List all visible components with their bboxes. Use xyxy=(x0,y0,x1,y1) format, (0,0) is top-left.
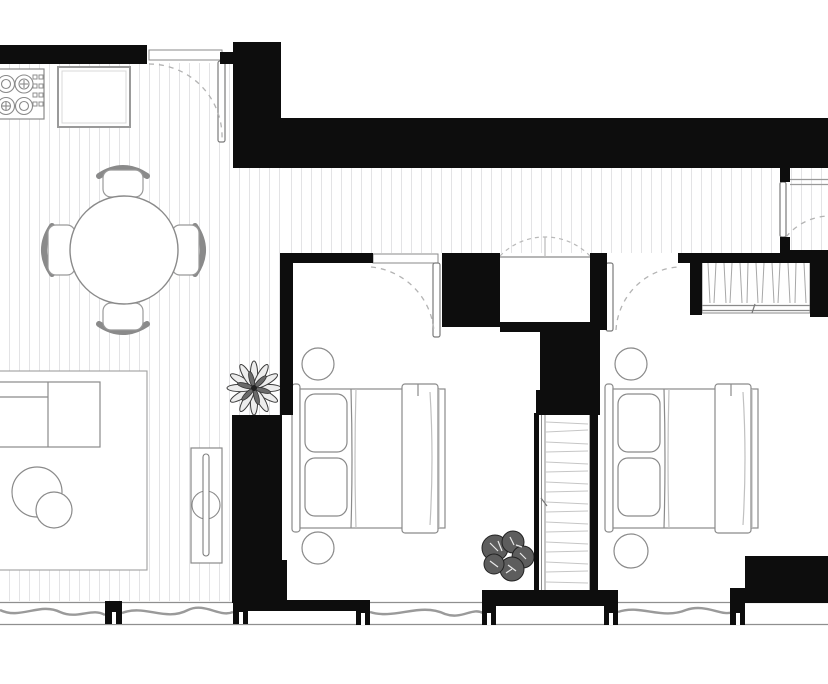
bedroom-2-door xyxy=(606,263,678,331)
plan-drawing xyxy=(0,0,828,684)
kitchen-counter xyxy=(0,67,130,127)
wall-bedroom1-top xyxy=(283,253,373,263)
side-room-door xyxy=(780,182,828,237)
side-room-shelf xyxy=(790,180,828,185)
pier-slit xyxy=(736,613,740,625)
bedroom-1-door-swing-arc xyxy=(371,267,434,332)
pier-slit xyxy=(112,612,116,624)
window-living-left xyxy=(0,609,105,615)
nightstand xyxy=(614,534,648,568)
bedroom-2-door-leaf xyxy=(606,263,613,331)
window-pier xyxy=(356,600,370,625)
bedroom-1-door xyxy=(371,254,440,337)
floor-plan xyxy=(0,0,828,684)
wall-wardrobe-right-corner xyxy=(810,262,828,317)
potted-plant-leafy xyxy=(482,531,534,581)
wall-shaft-left-edge xyxy=(534,413,539,593)
wall-sideroom-stub-top xyxy=(780,167,790,182)
tv-sideboard xyxy=(191,448,222,563)
wall-sideroom-stub-bottom xyxy=(780,237,790,253)
window-pier xyxy=(105,601,122,624)
wall-right-of-closet xyxy=(590,253,607,330)
window-pier xyxy=(233,601,248,624)
wall-bottom-right-block xyxy=(745,556,828,603)
wall-entrance-jamb xyxy=(220,52,233,64)
pillow xyxy=(305,394,347,452)
bedroom-1-door-leaf xyxy=(433,263,440,337)
window-pier xyxy=(730,588,745,625)
round-dining-table xyxy=(70,196,178,304)
wall-wardrobe-left xyxy=(690,262,702,315)
window-bedroom-2 xyxy=(618,608,733,613)
dining-set xyxy=(44,168,203,332)
window-bedroom-1 xyxy=(370,610,483,616)
nightstand xyxy=(302,348,334,380)
wall-shaft-right-edge xyxy=(590,413,598,593)
window-pier xyxy=(604,606,618,625)
potted-plant-star xyxy=(227,361,281,415)
wall-kitchen-top xyxy=(0,45,147,64)
side-room-door-leaf xyxy=(780,182,786,237)
wall-bedroom2-left xyxy=(590,330,600,415)
wall-chunk-door-closet xyxy=(442,253,500,327)
wall-bedroom1-bottom-bar xyxy=(248,600,370,611)
wall-sideroom-bottom xyxy=(790,250,828,262)
wall-bedroom1-left-thin xyxy=(280,253,293,415)
pier-slit xyxy=(361,613,365,625)
kitchen-cabinet xyxy=(58,67,130,127)
wall-hallway-top xyxy=(274,118,828,168)
wall-shaft-bottom-bar xyxy=(482,590,618,606)
pillow xyxy=(618,458,660,516)
built-in-wardrobe-shaft xyxy=(538,413,590,592)
headboard xyxy=(605,384,613,532)
entrance-door-swing-arc xyxy=(149,64,222,140)
hallway-closet-doors xyxy=(500,237,590,257)
nightstand xyxy=(302,532,334,564)
bed-bedroom-2 xyxy=(605,348,758,568)
side-room-door-swing-arc xyxy=(786,216,828,237)
pillow xyxy=(305,458,347,516)
pier-slit xyxy=(609,613,613,625)
pillow xyxy=(618,394,660,452)
headboard xyxy=(292,384,300,532)
bed-bedroom-1 xyxy=(292,348,445,564)
window-sills xyxy=(0,603,828,625)
wall-closet-bottom-lip xyxy=(500,322,540,332)
pier-slit xyxy=(487,613,491,625)
window-living-right xyxy=(122,608,233,615)
wall-shaft-top xyxy=(536,390,596,415)
bedroom-2-door-swing-arc xyxy=(616,267,678,330)
pier-slit xyxy=(239,612,243,624)
nightstand xyxy=(615,348,647,380)
wall-bottom-corner-chunk xyxy=(232,560,287,603)
sofa xyxy=(0,382,100,447)
wardrobe-hanging-rail xyxy=(702,262,810,313)
entrance-door xyxy=(149,50,225,142)
entrance-door-leaf xyxy=(218,61,225,142)
window-pier xyxy=(482,606,496,625)
